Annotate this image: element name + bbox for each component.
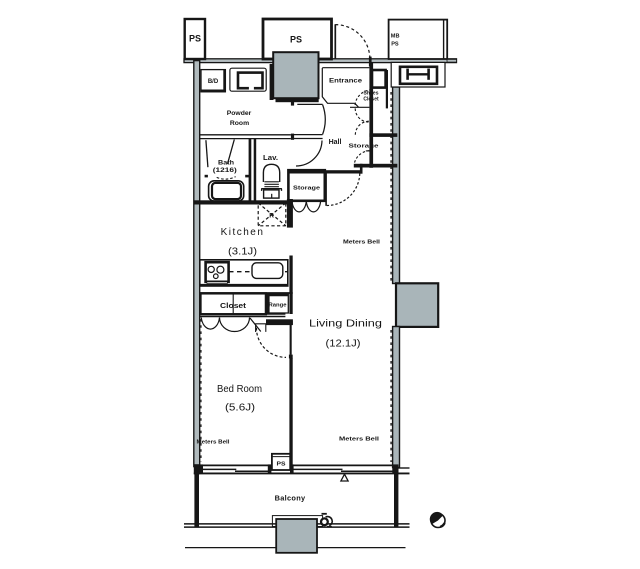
svg-text:(1216): (1216) — [213, 167, 237, 174]
svg-text:Lav.: Lav. — [263, 155, 278, 162]
svg-text:(12.1J): (12.1J) — [326, 339, 361, 350]
svg-text:Meters Bell: Meters Bell — [197, 440, 231, 446]
svg-text:MB: MB — [391, 34, 400, 40]
svg-text:(5.6J): (5.6J) — [225, 403, 255, 414]
svg-text:Hall: Hall — [329, 139, 342, 146]
svg-text:PS: PS — [290, 35, 302, 45]
svg-text:PS: PS — [189, 34, 201, 44]
svg-text:Meters Bell: Meters Bell — [343, 240, 381, 246]
svg-text:Range: Range — [269, 303, 287, 309]
svg-text:B/D: B/D — [208, 79, 219, 85]
svg-text:Bath: Bath — [218, 160, 234, 167]
svg-text:Living Dining: Living Dining — [309, 319, 382, 330]
svg-text:Closet: Closet — [363, 97, 379, 103]
svg-text:PS: PS — [277, 462, 286, 468]
svg-text:Storage: Storage — [293, 186, 320, 192]
svg-text:R: R — [269, 213, 274, 220]
svg-text:Closet: Closet — [220, 303, 247, 310]
svg-text:Entrance: Entrance — [329, 78, 362, 85]
svg-text:Bed Room: Bed Room — [217, 384, 262, 395]
svg-text:Powder: Powder — [227, 110, 252, 117]
svg-text:Kitchen: Kitchen — [221, 227, 265, 238]
svg-text:Meters Bell: Meters Bell — [339, 437, 380, 443]
svg-text:PS: PS — [391, 42, 399, 48]
svg-text:Room: Room — [230, 120, 249, 127]
svg-text:Storage: Storage — [349, 144, 379, 150]
svg-text:Balcony: Balcony — [275, 494, 306, 503]
svg-text:(3.1J): (3.1J) — [228, 247, 257, 258]
